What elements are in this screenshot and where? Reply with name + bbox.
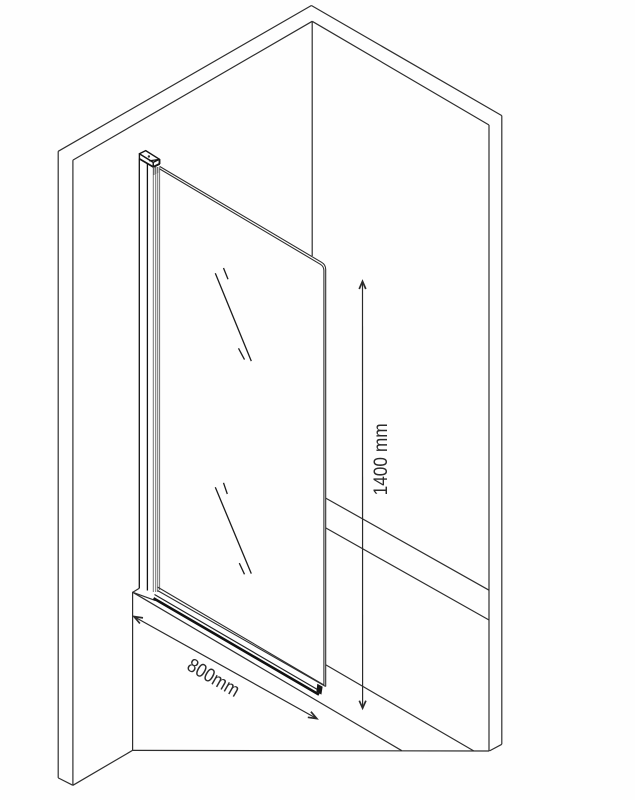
svg-text:1400 mm: 1400 mm: [370, 423, 392, 495]
